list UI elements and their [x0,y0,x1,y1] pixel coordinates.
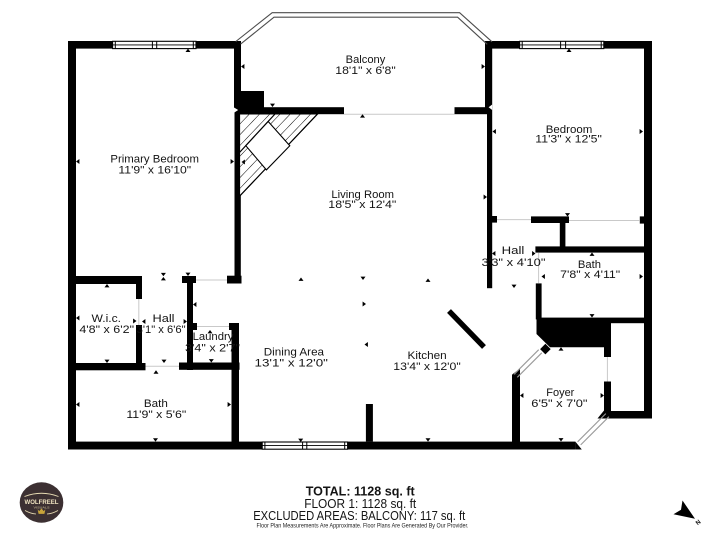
svg-text:3'3" x 4'10": 3'3" x 4'10" [482,257,546,269]
svg-text:W.i.c.: W.i.c. [92,313,122,325]
svg-text:Primary Bedroom: Primary Bedroom [110,153,199,165]
svg-text:EXCLUDED AREAS: BALCONY: 117 s: EXCLUDED AREAS: BALCONY: 117 sq. ft [253,508,465,523]
svg-text:Hall: Hall [502,245,525,257]
svg-text:18'5" x 12'4": 18'5" x 12'4" [328,199,396,211]
svg-text:11'9" x 5'6": 11'9" x 5'6" [126,409,186,421]
svg-text:11'3" x 12'5": 11'3" x 12'5" [535,134,602,146]
svg-text:Hall: Hall [153,313,175,325]
svg-text:Laundry: Laundry [193,331,234,343]
svg-text:Foyer: Foyer [546,387,575,399]
svg-text:3'4" x 2'7": 3'4" x 2'7" [185,343,240,355]
svg-text:13'4" x 12'0": 13'4" x 12'0" [393,361,461,373]
svg-text:Floor Plan Measurements Are Ap: Floor Plan Measurements Are Approximate.… [257,524,469,530]
svg-text:6'5" x 7'0": 6'5" x 7'0" [531,398,587,410]
svg-text:7'8" x 4'11": 7'8" x 4'11" [560,269,620,281]
svg-text:18'1" x 6'8": 18'1" x 6'8" [335,65,396,77]
svg-text:4'8" x 6'2": 4'8" x 6'2" [79,324,134,336]
svg-text:13'1" x 12'0": 13'1" x 12'0" [255,357,329,369]
svg-text:11'9" x 16'10": 11'9" x 16'10" [118,165,191,177]
svg-text:3'1" x 6'6": 3'1" x 6'6" [137,324,186,336]
